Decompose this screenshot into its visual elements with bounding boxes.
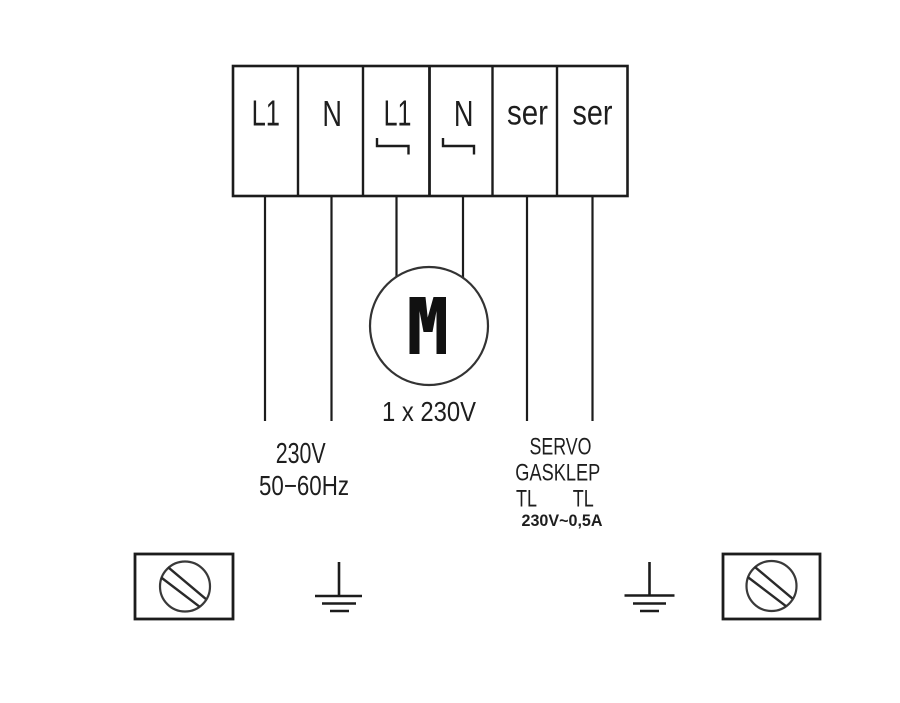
svg-text:50−60Hz: 50−60Hz [259,470,349,501]
svg-text:230V: 230V [276,438,326,470]
svg-text:1 x 230V: 1 x 230V [382,396,476,427]
svg-text:N: N [454,93,474,134]
svg-text:L1: L1 [252,93,280,134]
svg-text:SERVO: SERVO [530,433,592,460]
svg-text:ser: ser [507,94,548,133]
svg-text:TL: TL [573,485,594,512]
svg-text:ser: ser [573,94,613,133]
svg-text:230V~0,5A: 230V~0,5A [522,512,603,530]
svg-text:GASKLEP: GASKLEP [515,460,600,487]
svg-text:N: N [322,93,342,134]
svg-text:L1: L1 [384,93,412,134]
svg-text:TL: TL [516,485,537,512]
